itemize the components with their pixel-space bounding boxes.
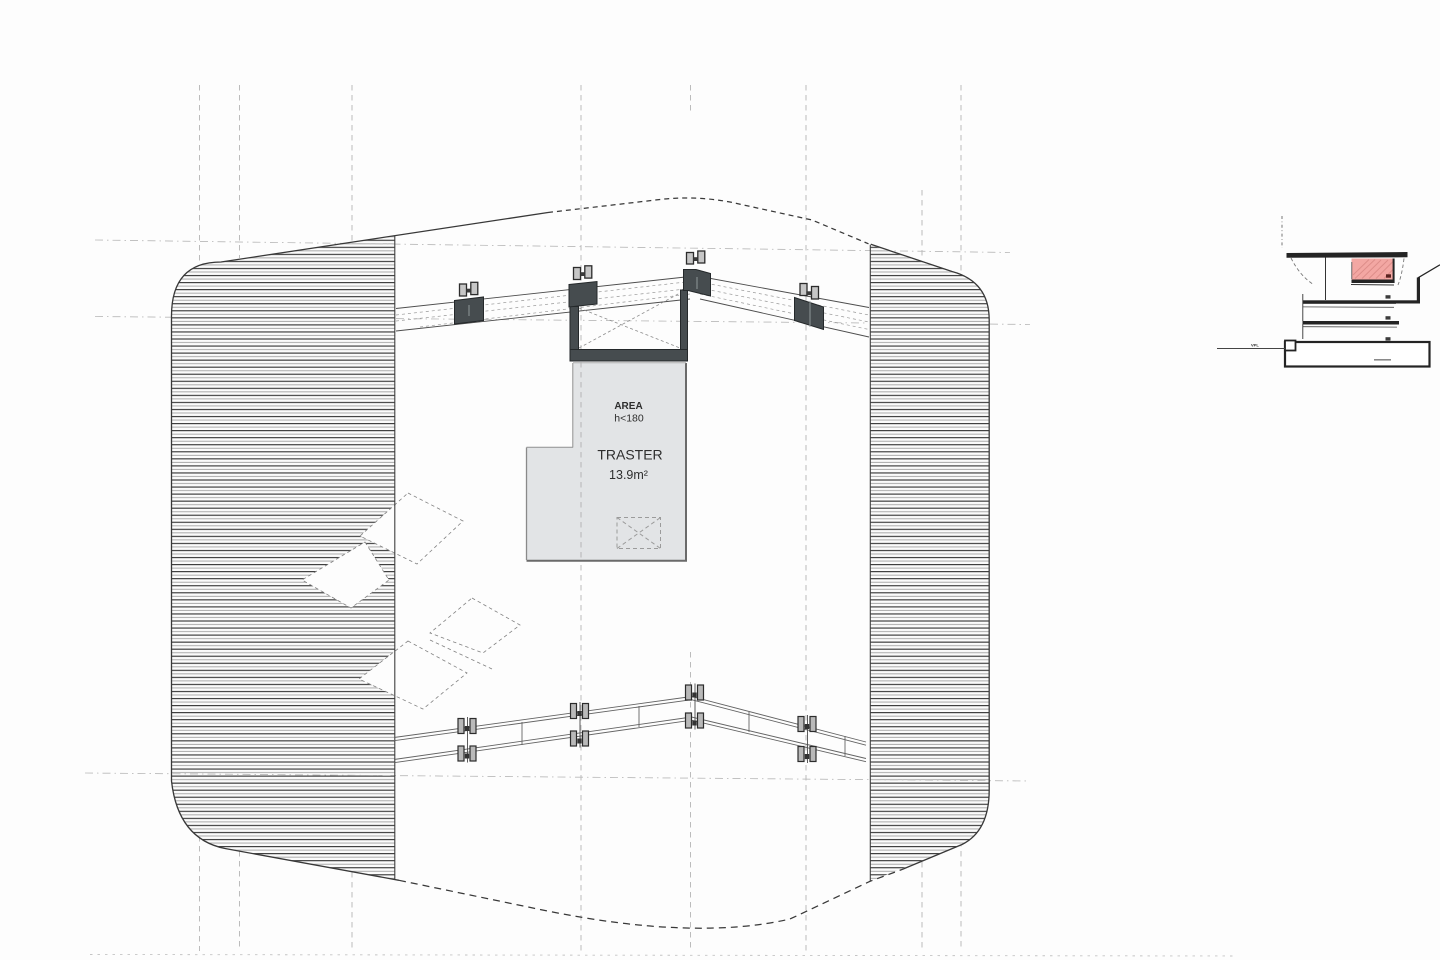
svg-text:13.9m²: 13.9m² [609, 468, 648, 482]
svg-text:TRASTER: TRASTER [597, 447, 662, 463]
svg-text:VPL: VPL [1251, 343, 1259, 348]
svg-text:h<180: h<180 [614, 413, 644, 425]
svg-text:AREA: AREA [614, 401, 642, 412]
